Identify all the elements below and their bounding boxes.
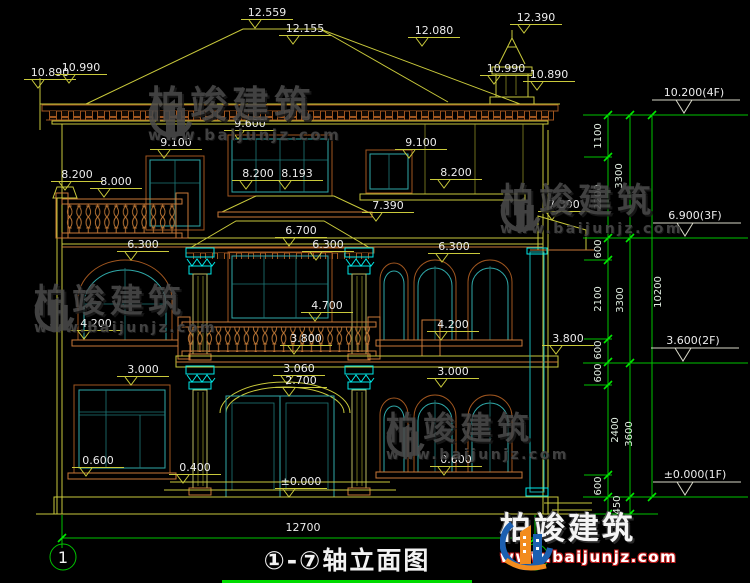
window-3f-right	[366, 150, 412, 193]
svg-text:3.000: 3.000	[437, 365, 469, 378]
corner-column-right	[526, 248, 548, 496]
brand-logo: 柏竣建筑 www.baijunjz.com	[500, 514, 677, 566]
svg-text:9.600: 9.600	[234, 117, 266, 130]
svg-text:12.080: 12.080	[415, 24, 454, 37]
green-dim-text: 3300	[615, 287, 626, 312]
svg-text:9.100: 9.100	[160, 136, 192, 149]
svg-text:6.300: 6.300	[127, 238, 159, 251]
corbel-right	[530, 216, 594, 250]
svg-text:8.200: 8.200	[61, 168, 93, 181]
svg-text:3.800: 3.800	[290, 332, 322, 345]
elevation-label: 10.890	[523, 68, 575, 90]
balcony-left	[56, 193, 188, 238]
windows-2f-right-arched	[376, 260, 522, 346]
svg-text:0.600: 0.600	[440, 453, 472, 466]
svg-text:4.200: 4.200	[437, 318, 469, 331]
svg-text:7.390: 7.390	[372, 199, 404, 212]
green-dim-text: 600	[593, 239, 604, 258]
elevation-label: 12.390	[510, 11, 562, 33]
svg-text:8.200: 8.200	[242, 167, 274, 180]
svg-text:4.700: 4.700	[311, 299, 343, 312]
elevation-label: 2.700	[275, 374, 327, 396]
elevation-label: 7.390	[538, 198, 590, 220]
svg-text:0.600: 0.600	[82, 454, 114, 467]
drawing-title-block: ①-⑦轴立面图	[222, 541, 472, 583]
axis-number-1: 1	[58, 548, 68, 567]
svg-text:10.990: 10.990	[62, 61, 101, 74]
svg-text:8.193: 8.193	[281, 167, 313, 180]
svg-text:9.100: 9.100	[405, 136, 437, 149]
svg-text:4.200: 4.200	[80, 317, 112, 330]
drawing-title: ①-⑦轴立面图	[222, 541, 472, 577]
svg-text:2.700: 2.700	[285, 374, 317, 387]
elevation-label: 0.400	[169, 461, 221, 483]
svg-text:8.000: 8.000	[100, 175, 132, 188]
elevation-label: 3.800	[542, 332, 594, 354]
svg-text:6.300: 6.300	[312, 238, 344, 251]
elevation-label: 12.155	[279, 22, 331, 44]
green-dim-text: 3300	[614, 163, 625, 188]
elevation-label: 6.300	[428, 240, 480, 262]
svg-text:10.200(4F): 10.200(4F)	[664, 86, 724, 99]
svg-text:3.600(2F): 3.600(2F)	[666, 334, 719, 347]
svg-text:12.155: 12.155	[286, 22, 325, 35]
svg-text:3.000: 3.000	[127, 363, 159, 376]
green-dim-text: 2400	[610, 417, 621, 442]
main-cornice	[42, 105, 558, 124]
axis-bubble-1: 1	[50, 544, 76, 570]
svg-text:12.390: 12.390	[517, 11, 556, 24]
window-3f-center	[228, 135, 332, 196]
cad-canvas: 12700 1 7 10.200(4F)6.900(3F)3.600(2F)±0…	[0, 0, 750, 583]
elevation-label: 8.200	[430, 166, 482, 188]
elevation-label: 8.200	[232, 167, 284, 189]
svg-text:8.200: 8.200	[440, 166, 472, 179]
green-dim-text: 3600	[624, 421, 635, 446]
elevation-label: 12.080	[408, 24, 460, 46]
svg-text:12.559: 12.559	[248, 6, 287, 19]
elevation-label: 9.100	[395, 136, 447, 158]
green-dim-text: 600	[593, 340, 604, 359]
svg-text:6.300: 6.300	[438, 240, 470, 253]
green-dim-text: 10200	[653, 276, 664, 308]
main-roof	[40, 29, 560, 104]
total-width-dim: 12700	[286, 521, 321, 534]
elevation-drawing: 12700 1 7 10.200(4F)6.900(3F)3.600(2F)±0…	[0, 0, 750, 583]
elevation-label: 3.000	[117, 363, 169, 385]
elevation-label: 6.300	[117, 238, 169, 260]
green-dim-texts: 1100330022006002100330010200600600240036…	[593, 123, 664, 514]
svg-text:10.890: 10.890	[530, 68, 569, 81]
svg-text:±0.000(1F): ±0.000(1F)	[664, 468, 727, 481]
level-marker: 10.200(4F)	[583, 86, 748, 115]
brand-logo-icon	[500, 514, 556, 576]
elevation-label: 8.000	[90, 175, 142, 197]
center-awning-roof	[218, 196, 372, 217]
green-dim-text: 2100	[593, 286, 604, 311]
svg-text:0.400: 0.400	[179, 461, 211, 474]
green-dim-text: 2200	[593, 184, 604, 209]
green-dim-text: 1100	[593, 123, 604, 148]
elevation-label: 8.193	[271, 167, 323, 189]
svg-text:7.390: 7.390	[548, 198, 580, 211]
green-dim-text: 600	[593, 476, 604, 495]
balcony-slab	[176, 356, 558, 367]
svg-text:6.900(3F): 6.900(3F)	[668, 209, 721, 222]
svg-text:3.800: 3.800	[552, 332, 584, 345]
elevation-label: 7.390	[362, 199, 414, 221]
svg-text:±0.000: ±0.000	[281, 475, 322, 488]
green-dim-text: 600	[593, 363, 604, 382]
elevation-label: 9.100	[150, 136, 202, 158]
elevation-label: 3.000	[427, 365, 479, 387]
elevation-label: ±0.000	[275, 475, 327, 497]
svg-text:10.990: 10.990	[487, 62, 526, 75]
svg-text:6.700: 6.700	[285, 224, 317, 237]
